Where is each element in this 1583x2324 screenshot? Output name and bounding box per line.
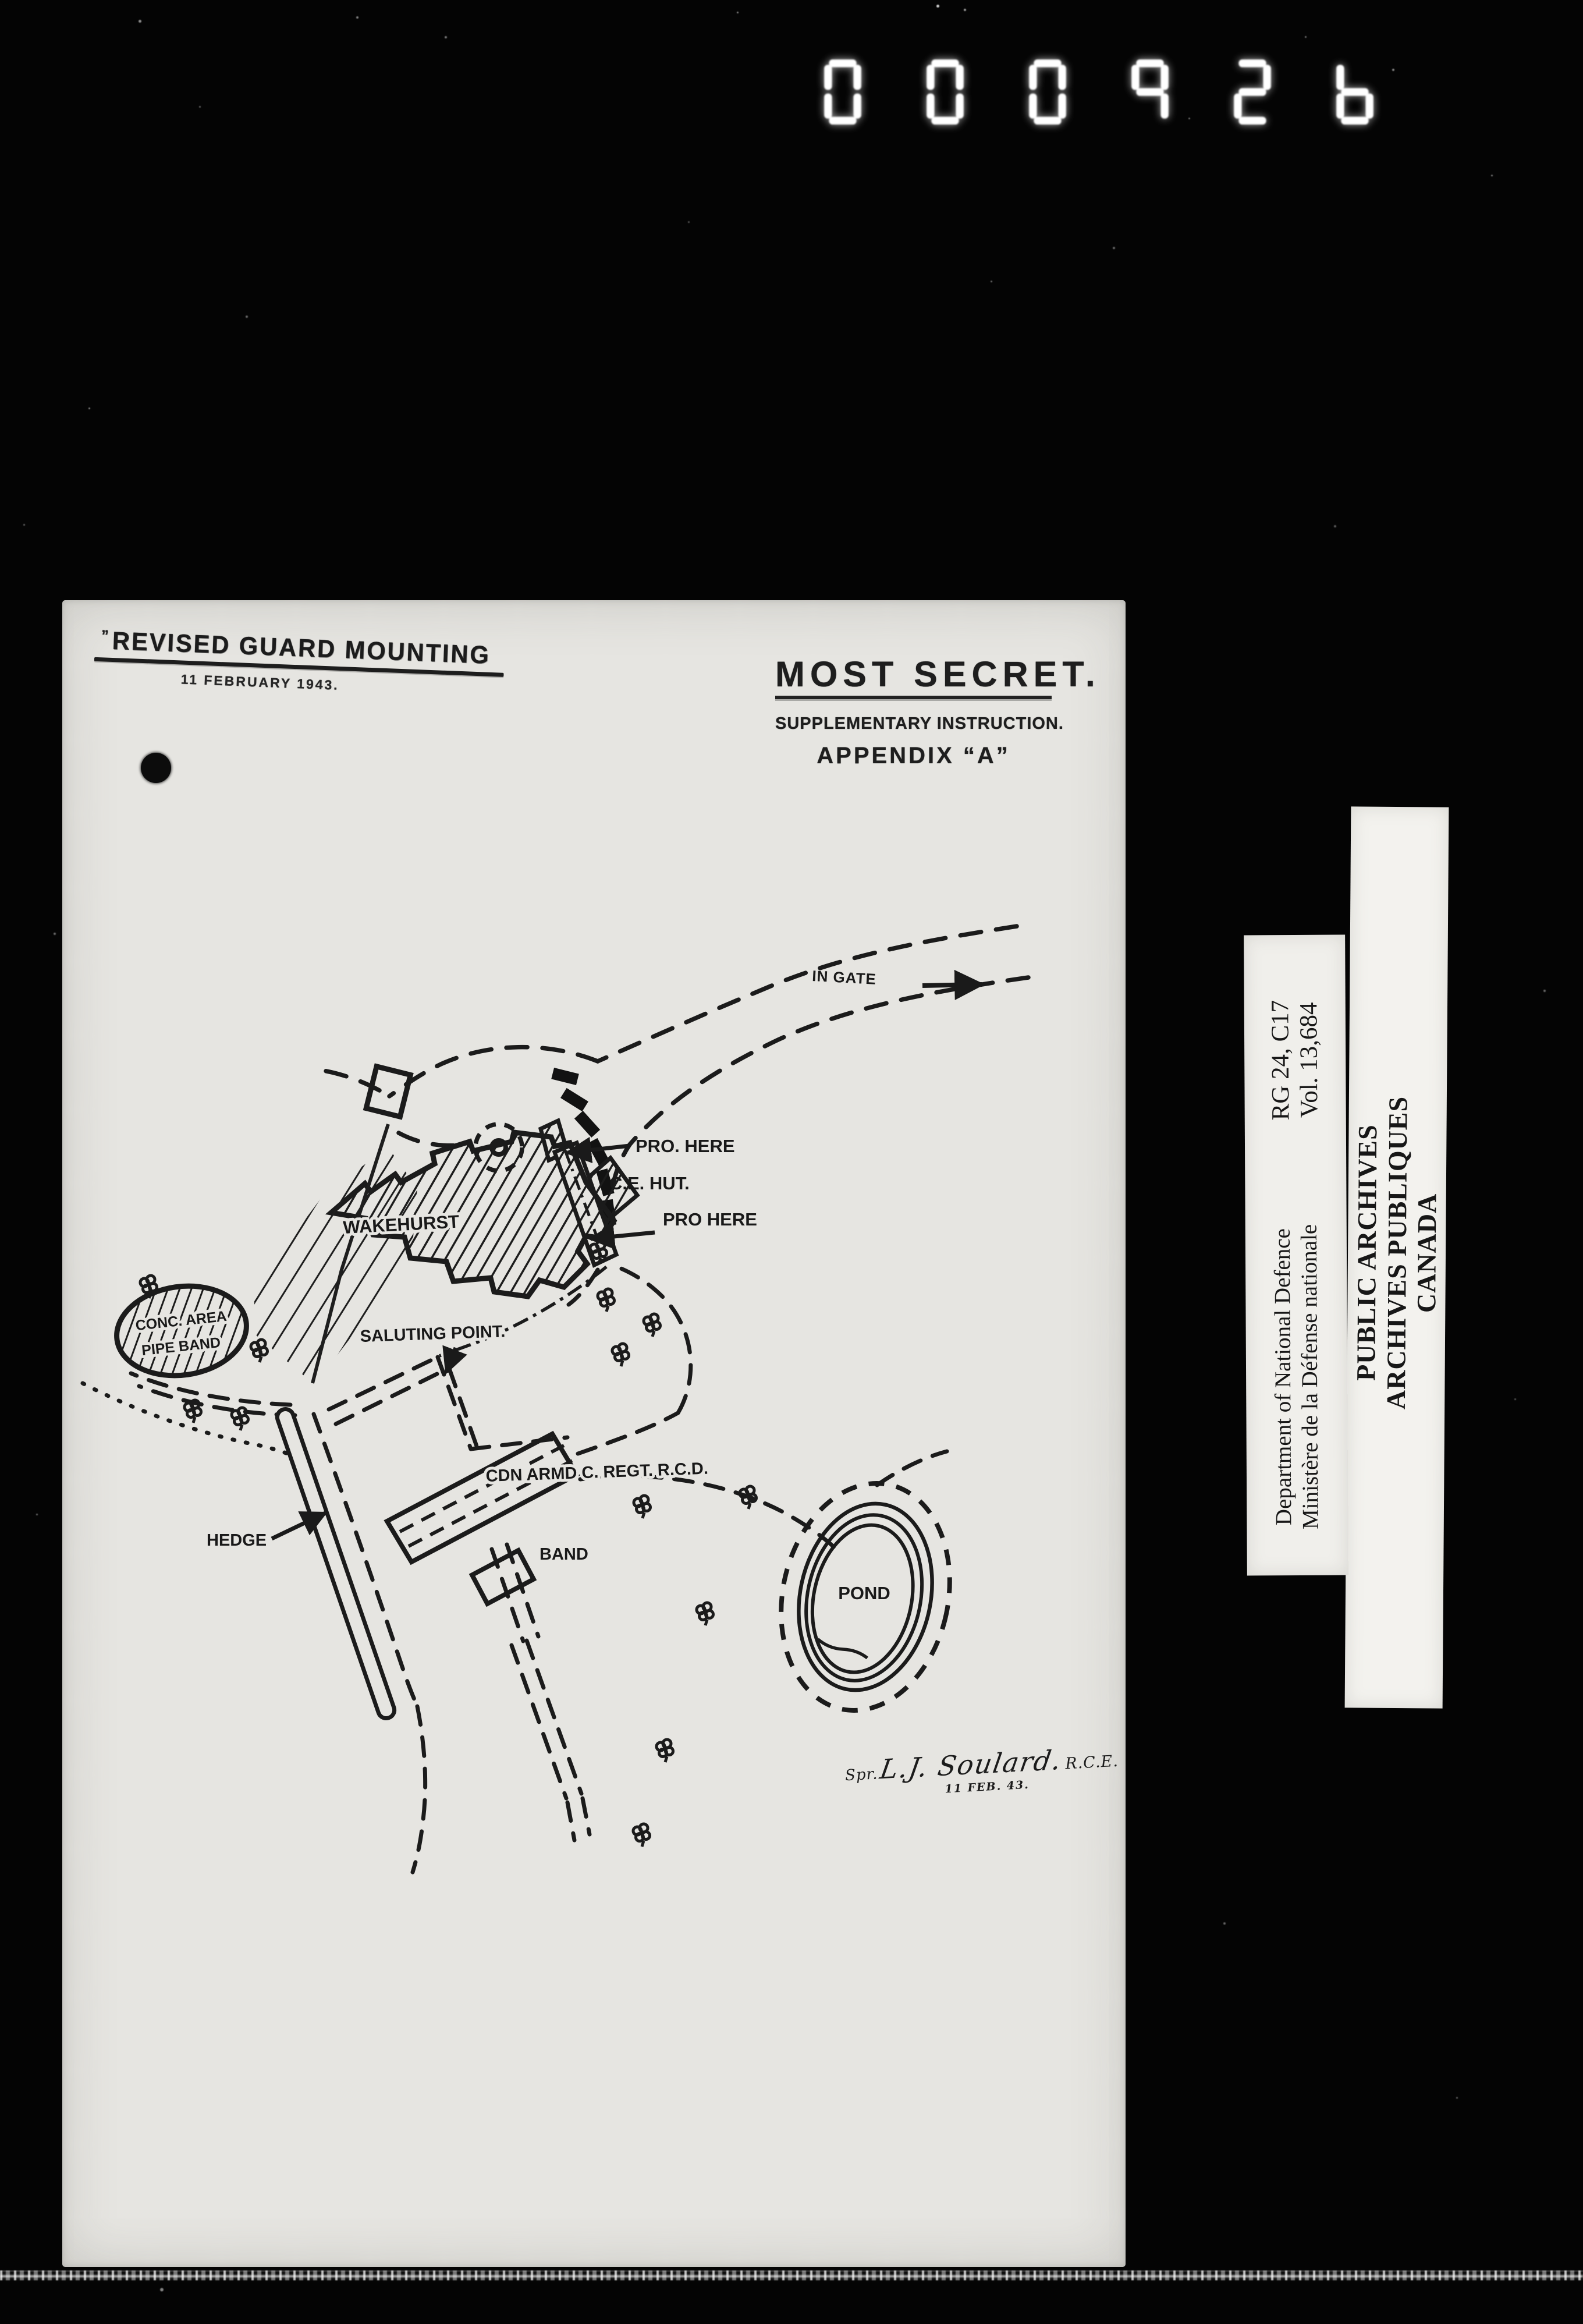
film-speck xyxy=(964,9,966,11)
film-speck xyxy=(688,221,690,223)
film-speck xyxy=(356,16,359,19)
archives-line-en: PUBLIC ARCHIVES xyxy=(1350,1055,1383,1451)
counter-digit xyxy=(1231,57,1273,127)
film-speck xyxy=(1113,247,1115,249)
reference-card: RG 24, C17 Vol. 13,684 Department of Nat… xyxy=(1244,935,1348,1576)
counter-digit xyxy=(1334,57,1376,127)
document-page: ”REVISED GUARD MOUNTING 11 FEBRUARY 1943… xyxy=(62,600,1126,2267)
counter-digit xyxy=(822,57,864,127)
film-speck xyxy=(160,2288,164,2291)
film-speck xyxy=(36,1514,38,1515)
entrance-road xyxy=(316,926,1028,1200)
film-speck xyxy=(1188,118,1190,119)
film-speck xyxy=(1456,2097,1458,2099)
in-gate-arrow xyxy=(922,984,982,986)
film-speck xyxy=(1223,1922,1226,1925)
film-edge-streak xyxy=(0,2270,1583,2280)
film-speck xyxy=(445,36,447,38)
outbuilding xyxy=(366,1067,410,1117)
label-hedge: HEDGE xyxy=(207,1531,267,1550)
label-ce-hut: C.E. HUT. xyxy=(609,1173,690,1193)
counter-digit xyxy=(924,57,966,127)
archives-card-text: PUBLIC ARCHIVES ARCHIVES PUBLIQUES CANAD… xyxy=(1350,1055,1443,1451)
archives-line-canada: CANADA xyxy=(1410,1055,1443,1451)
label-saluting-point: SALUTING POINT. xyxy=(360,1322,506,1346)
film-speck xyxy=(1305,36,1307,38)
department-line-fr: Ministère de la Défense nationale xyxy=(1295,1179,1325,1575)
label-pond: POND xyxy=(838,1583,890,1603)
hedge-strip xyxy=(275,1407,397,1721)
film-speck xyxy=(1514,1398,1516,1400)
film-speck xyxy=(737,12,739,13)
parade-routes xyxy=(131,1266,947,1872)
regiment-block xyxy=(387,1434,577,1562)
conc-area-oval xyxy=(111,1278,253,1384)
film-speck xyxy=(54,933,56,935)
microfilm-frame: ”REVISED GUARD MOUNTING 11 FEBRUARY 1943… xyxy=(0,0,1583,2324)
film-speck xyxy=(88,408,90,409)
film-speck xyxy=(1392,69,1394,71)
film-speck xyxy=(1543,990,1546,992)
department-text: Department of National Defence Ministère… xyxy=(1269,1179,1325,1575)
film-speck xyxy=(1491,175,1493,176)
film-speck xyxy=(991,281,992,282)
department-line-en: Department of National Defence xyxy=(1269,1179,1298,1575)
counter-digit xyxy=(1129,57,1171,127)
counter-digit xyxy=(1027,57,1069,127)
label-pro-here-bottom: PRO HERE xyxy=(663,1209,757,1230)
label-band: BAND xyxy=(540,1545,588,1564)
label-in-gate: IN GATE xyxy=(812,967,877,988)
film-speck xyxy=(246,316,248,318)
label-pro-here-top: PRO. HERE xyxy=(636,1136,735,1156)
film-speck xyxy=(139,20,141,23)
archives-line-fr: ARCHIVES PUBLIQUES xyxy=(1380,1055,1413,1451)
film-speck xyxy=(199,106,201,108)
site-map: IN GATE PRO. HERE C.E. HUT. PRO HERE WAK… xyxy=(62,600,1126,2267)
archives-card: PUBLIC ARCHIVES ARCHIVES PUBLIQUES CANAD… xyxy=(1345,806,1449,1708)
frame-counter xyxy=(822,57,1376,127)
film-speck xyxy=(1334,525,1336,527)
label-cdn-armd-regt: CDN ARMD C. REGT. R.C.D. xyxy=(485,1459,708,1486)
film-speck xyxy=(936,5,939,8)
film-speck xyxy=(23,524,25,526)
